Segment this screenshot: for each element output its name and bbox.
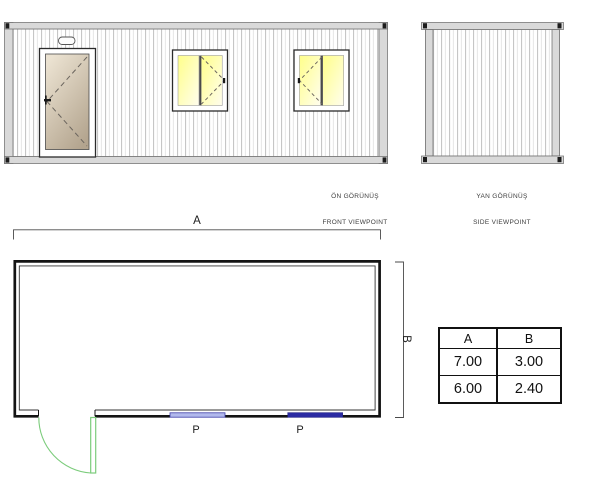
table-cell-b2: 2.40 — [497, 376, 561, 404]
front-top-rail — [5, 23, 388, 30]
plan-window-1-label: P — [185, 424, 207, 436]
window-glass — [178, 56, 199, 106]
door-swing-arc — [39, 418, 91, 474]
door-leaf — [91, 418, 96, 474]
side-view-caption: YAN GÖRÜNÜŞ SIDE VIEWPOINT — [447, 176, 557, 244]
corner-fitting — [383, 23, 387, 28]
table-cell-a2: 6.00 — [439, 376, 497, 404]
plan-door-swing — [39, 418, 96, 474]
door-jambs — [39, 410, 96, 416]
dim-label-a: A — [13, 215, 381, 227]
floor-plan — [15, 261, 380, 473]
side-view — [422, 23, 564, 164]
window-handle-icon — [298, 78, 300, 83]
front-left-corner-post — [5, 23, 14, 164]
corner-fitting — [6, 23, 10, 28]
entry-door — [40, 49, 96, 158]
table-row: 7.00 3.00 — [439, 349, 561, 376]
front-view-caption: ÖN GÖRÜNÜŞ FRONT VIEWPOINT — [300, 176, 410, 244]
front-caption-tr: ÖN GÖRÜNÜŞ — [300, 193, 410, 202]
dimension-table: A B 7.00 3.00 6.00 2.40 — [438, 327, 562, 404]
corner-fitting — [558, 157, 562, 162]
side-left-corner-post — [426, 30, 434, 157]
front-window-1 — [173, 50, 228, 111]
window-glass — [300, 56, 321, 106]
dim-label-b: B — [400, 332, 412, 346]
dimension-lines — [14, 230, 404, 418]
window-glass — [323, 56, 344, 106]
plan-window-2-label: P — [289, 424, 311, 436]
corner-fitting — [558, 23, 562, 28]
plan-walls-outer — [15, 261, 380, 416]
window-handle-icon — [223, 78, 225, 83]
vent-grille — [59, 37, 76, 45]
corner-fitting — [423, 23, 427, 28]
table-cell-a1: 7.00 — [439, 349, 497, 376]
drawing-sheet: ÖN GÖRÜNÜŞ FRONT VIEWPOINT YAN GÖRÜNÜŞ S… — [0, 0, 616, 480]
side-top-rail — [422, 23, 564, 30]
plan-walls-inner — [19, 266, 375, 410]
plan-window-1 — [170, 413, 225, 417]
window-mullion — [199, 56, 201, 106]
window-glass — [201, 56, 222, 106]
front-window-2 — [294, 50, 349, 111]
table-cell-b1: 3.00 — [497, 349, 561, 376]
front-right-corner-post — [379, 23, 388, 164]
table-row: 6.00 2.40 — [439, 376, 561, 404]
table-header-a: A — [439, 328, 497, 349]
door-glass-panel — [46, 54, 90, 150]
side-wall-siding — [426, 30, 560, 157]
corner-fitting — [423, 157, 427, 162]
side-right-corner-post — [552, 30, 560, 157]
corner-fitting — [383, 157, 387, 162]
side-caption-tr: YAN GÖRÜNÜŞ — [447, 193, 557, 202]
side-caption-en: SIDE VIEWPOINT — [447, 219, 557, 228]
window-mullion — [321, 56, 323, 106]
corner-fitting — [6, 157, 10, 162]
side-bottom-rail — [422, 156, 564, 164]
front-view — [5, 23, 388, 164]
table-header-b: B — [497, 328, 561, 349]
plan-window-2 — [288, 413, 343, 418]
door-handle-icon — [45, 96, 47, 105]
